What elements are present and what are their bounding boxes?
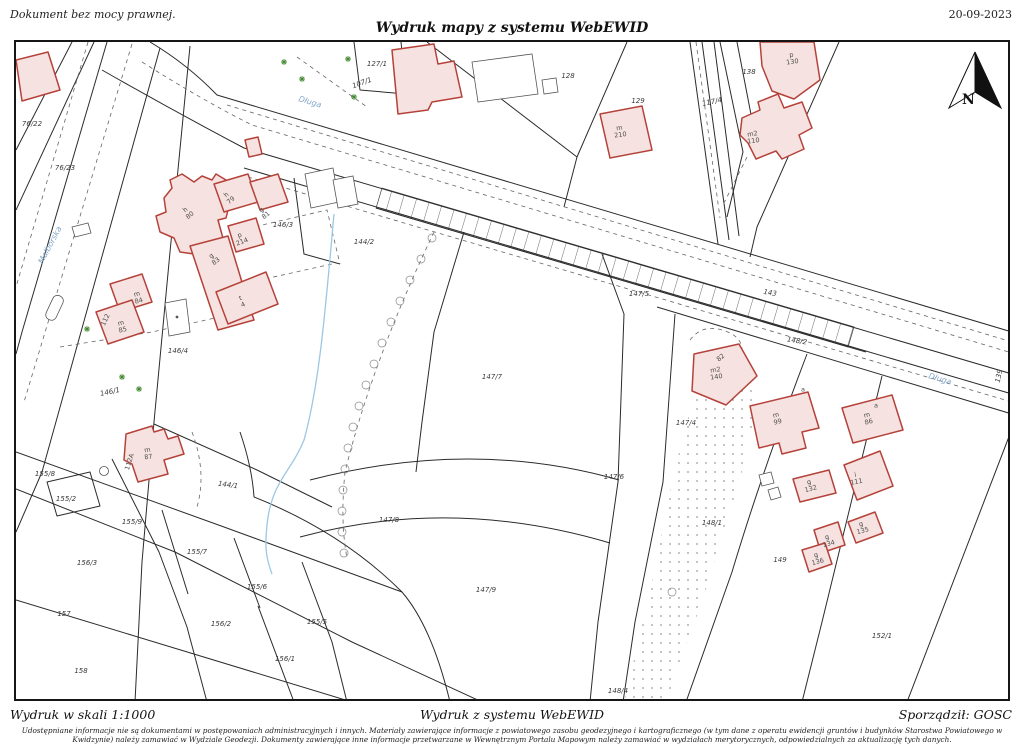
road-tick-strip xyxy=(376,188,854,347)
north-label: N xyxy=(962,92,975,108)
tree-symbols xyxy=(84,56,357,392)
stream-line xyxy=(266,214,334,574)
stipple-area xyxy=(624,364,760,699)
map-linework xyxy=(16,42,1008,699)
print-date: 20-09-2023 xyxy=(949,8,1012,21)
page-title: Wydruk mapy z systemu WebEWID xyxy=(0,20,1024,36)
map-canvas: 76/22 76/23 107/1 127/1 128 129 117/4 13… xyxy=(14,40,1010,701)
footer-author: Sporządził: GOSC xyxy=(899,707,1012,722)
parcel-boundaries xyxy=(16,42,1008,699)
footer-disclaimer: Udostępniane informacje nie są dokumenta… xyxy=(17,726,1007,744)
footer-system-label: Wydruk z systemu WebEWID xyxy=(0,707,1024,722)
north-arrow-icon xyxy=(949,52,1001,108)
